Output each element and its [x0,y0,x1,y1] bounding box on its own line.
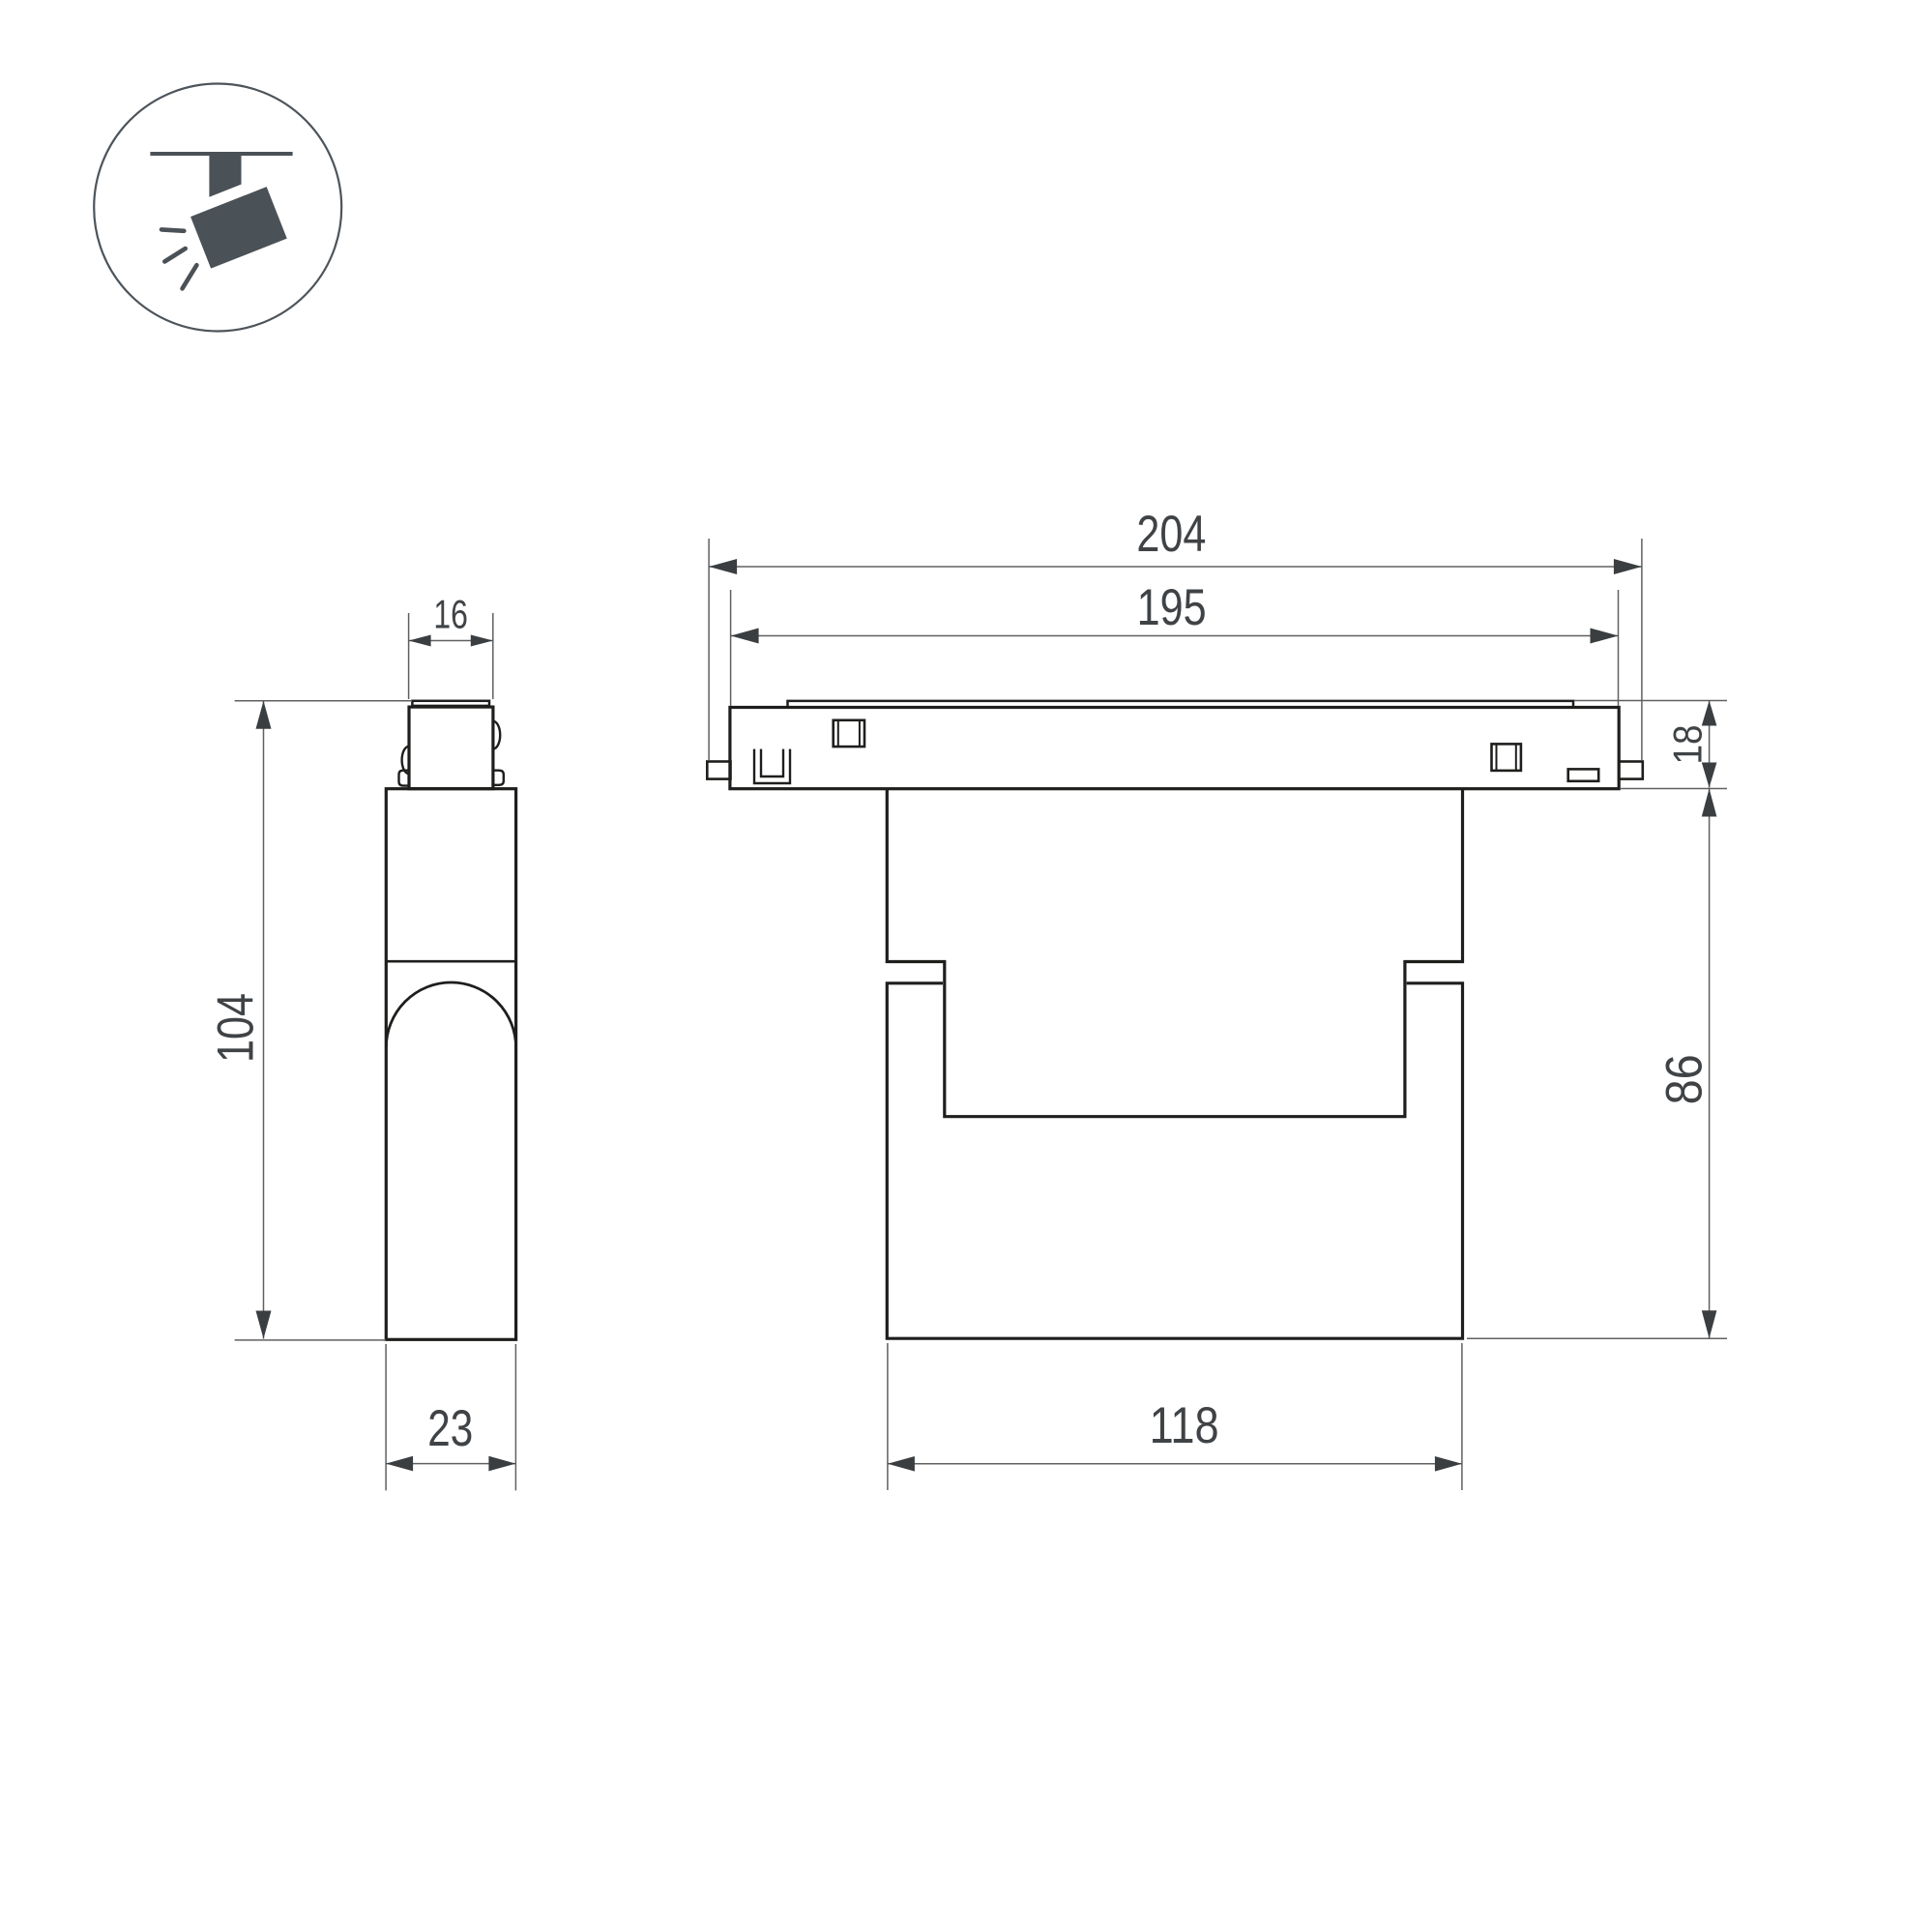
svg-text:204: 204 [1136,506,1206,563]
svg-text:23: 23 [427,1400,473,1457]
svg-text:18: 18 [1665,725,1711,765]
svg-text:118: 118 [1150,1397,1219,1454]
svg-text:104: 104 [208,993,265,1063]
svg-text:86: 86 [1656,1054,1713,1104]
svg-text:16: 16 [433,592,468,637]
svg-text:195: 195 [1137,579,1207,636]
